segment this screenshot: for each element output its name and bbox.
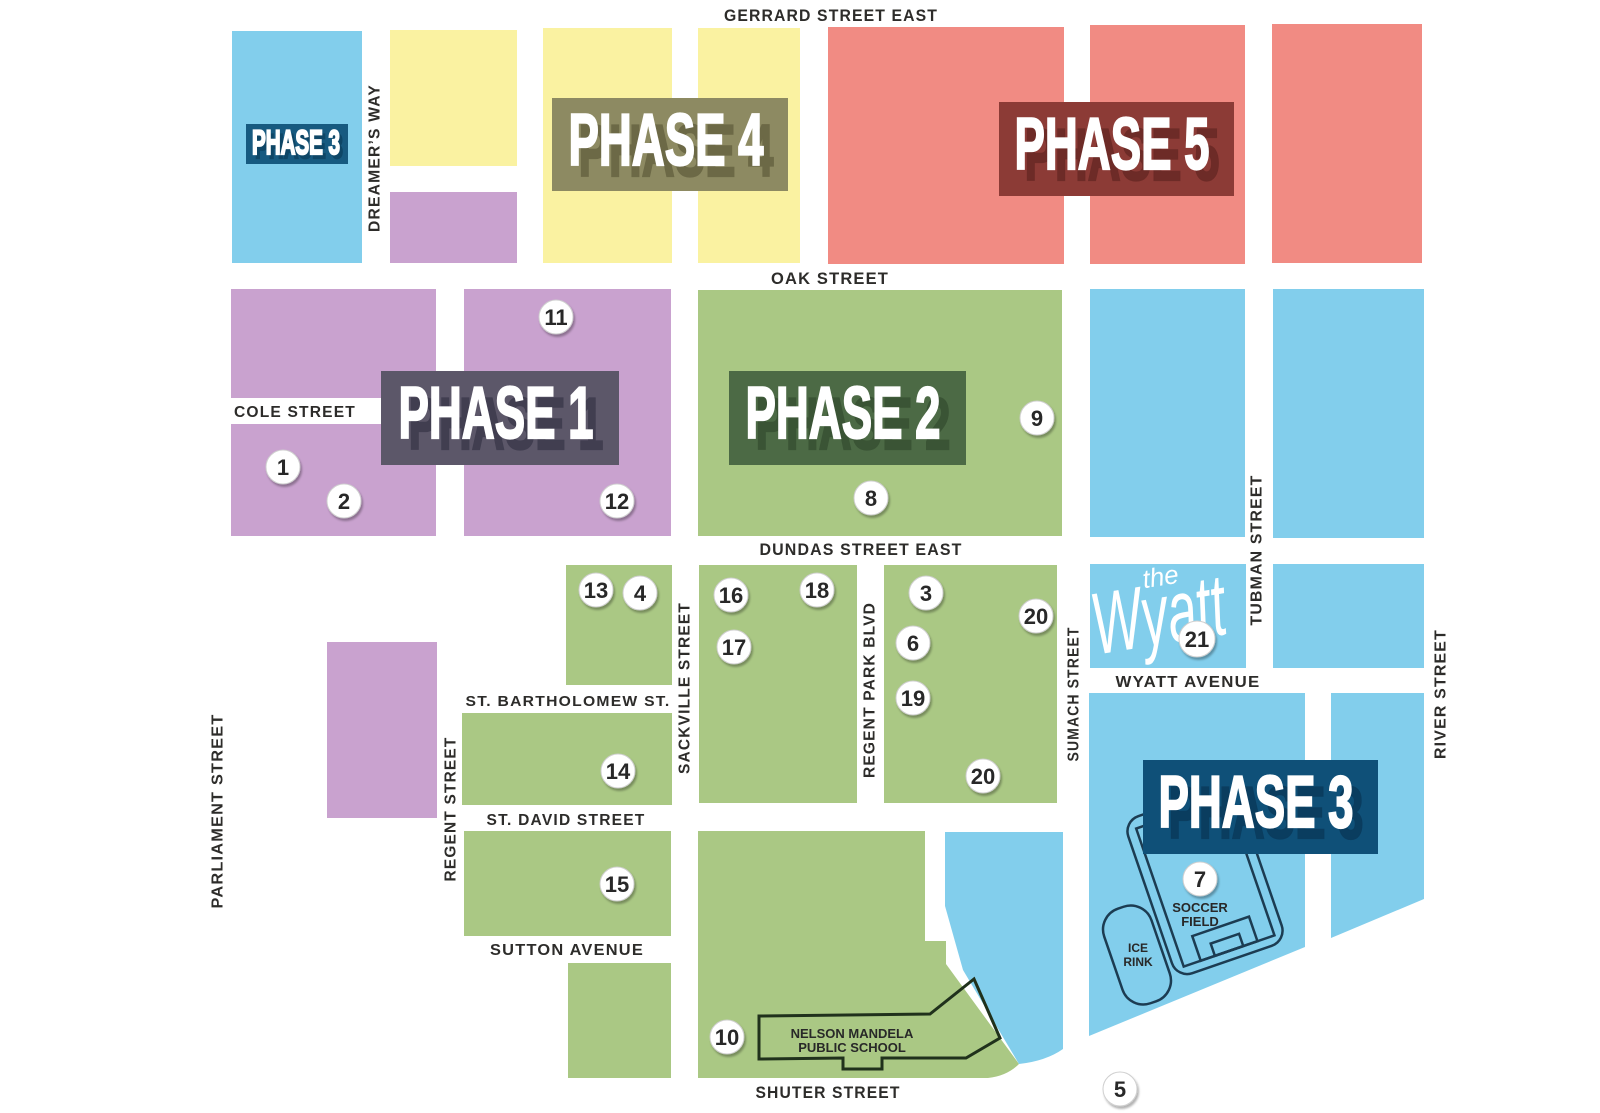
- svg-text:14: 14: [606, 759, 631, 784]
- svg-text:RIVER STREET: RIVER STREET: [1433, 629, 1450, 759]
- svg-text:SACKVILLE STREET: SACKVILLE STREET: [677, 602, 694, 774]
- svg-text:13: 13: [584, 578, 608, 603]
- svg-text:18: 18: [805, 578, 829, 603]
- svg-text:16: 16: [719, 583, 743, 608]
- svg-text:PHASE 3: PHASE 3: [1159, 762, 1354, 843]
- svg-text:REGENT STREET: REGENT STREET: [443, 737, 460, 882]
- svg-text:PHASE 4: PHASE 4: [569, 100, 764, 181]
- svg-text:ST. DAVID STREET: ST. DAVID STREET: [487, 812, 646, 829]
- svg-text:DREAMER’S WAY: DREAMER’S WAY: [367, 84, 384, 232]
- svg-text:21: 21: [1185, 627, 1209, 652]
- svg-text:OAK STREET: OAK STREET: [771, 269, 889, 288]
- svg-text:SUTTON AVENUE: SUTTON AVENUE: [490, 942, 644, 959]
- svg-text:REGENT PARK BLVD: REGENT PARK BLVD: [862, 602, 879, 778]
- svg-text:FIELD: FIELD: [1181, 914, 1219, 929]
- svg-text:6: 6: [907, 631, 919, 656]
- svg-text:15: 15: [605, 872, 629, 897]
- svg-text:RINK: RINK: [1123, 955, 1153, 969]
- svg-text:PUBLIC SCHOOL: PUBLIC SCHOOL: [798, 1040, 906, 1055]
- svg-text:3: 3: [920, 581, 932, 606]
- svg-text:11: 11: [544, 305, 567, 330]
- svg-text:PHASE 5: PHASE 5: [1015, 104, 1210, 185]
- svg-text:DUNDAS STREET EAST: DUNDAS STREET EAST: [760, 540, 963, 559]
- svg-text:GERRARD STREET EAST: GERRARD STREET EAST: [724, 6, 938, 25]
- svg-text:1: 1: [277, 455, 289, 480]
- svg-text:5: 5: [1114, 1077, 1126, 1102]
- svg-text:8: 8: [865, 486, 877, 511]
- svg-text:19: 19: [901, 686, 925, 711]
- svg-text:9: 9: [1031, 406, 1043, 431]
- svg-text:12: 12: [605, 489, 629, 514]
- svg-text:SUMACH STREET: SUMACH STREET: [1066, 627, 1083, 762]
- svg-text:WYATT AVENUE: WYATT AVENUE: [1116, 674, 1261, 691]
- svg-text:COLE STREET: COLE STREET: [234, 404, 356, 421]
- svg-text:10: 10: [715, 1025, 739, 1050]
- svg-text:2: 2: [338, 489, 350, 514]
- svg-text:PHASE 2: PHASE 2: [746, 373, 941, 454]
- svg-text:17: 17: [722, 635, 746, 660]
- svg-text:20: 20: [971, 764, 995, 789]
- svg-text:ST. BARTHOLOMEW ST.: ST. BARTHOLOMEW ST.: [466, 693, 671, 710]
- svg-text:4: 4: [634, 581, 647, 606]
- svg-text:PHASE 1: PHASE 1: [399, 373, 594, 454]
- svg-text:ICE: ICE: [1128, 941, 1148, 955]
- svg-text:20: 20: [1024, 604, 1048, 629]
- svg-text:NELSON MANDELA: NELSON MANDELA: [791, 1026, 914, 1041]
- svg-text:SOCCER: SOCCER: [1172, 900, 1228, 915]
- svg-text:SHUTER STREET: SHUTER STREET: [756, 1083, 901, 1102]
- svg-text:7: 7: [1194, 867, 1206, 892]
- svg-text:PHASE 3: PHASE 3: [252, 124, 340, 162]
- svg-text:PARLIAMENT STREET: PARLIAMENT STREET: [210, 714, 227, 909]
- svg-text:TUBMAN STREET: TUBMAN STREET: [1249, 475, 1266, 626]
